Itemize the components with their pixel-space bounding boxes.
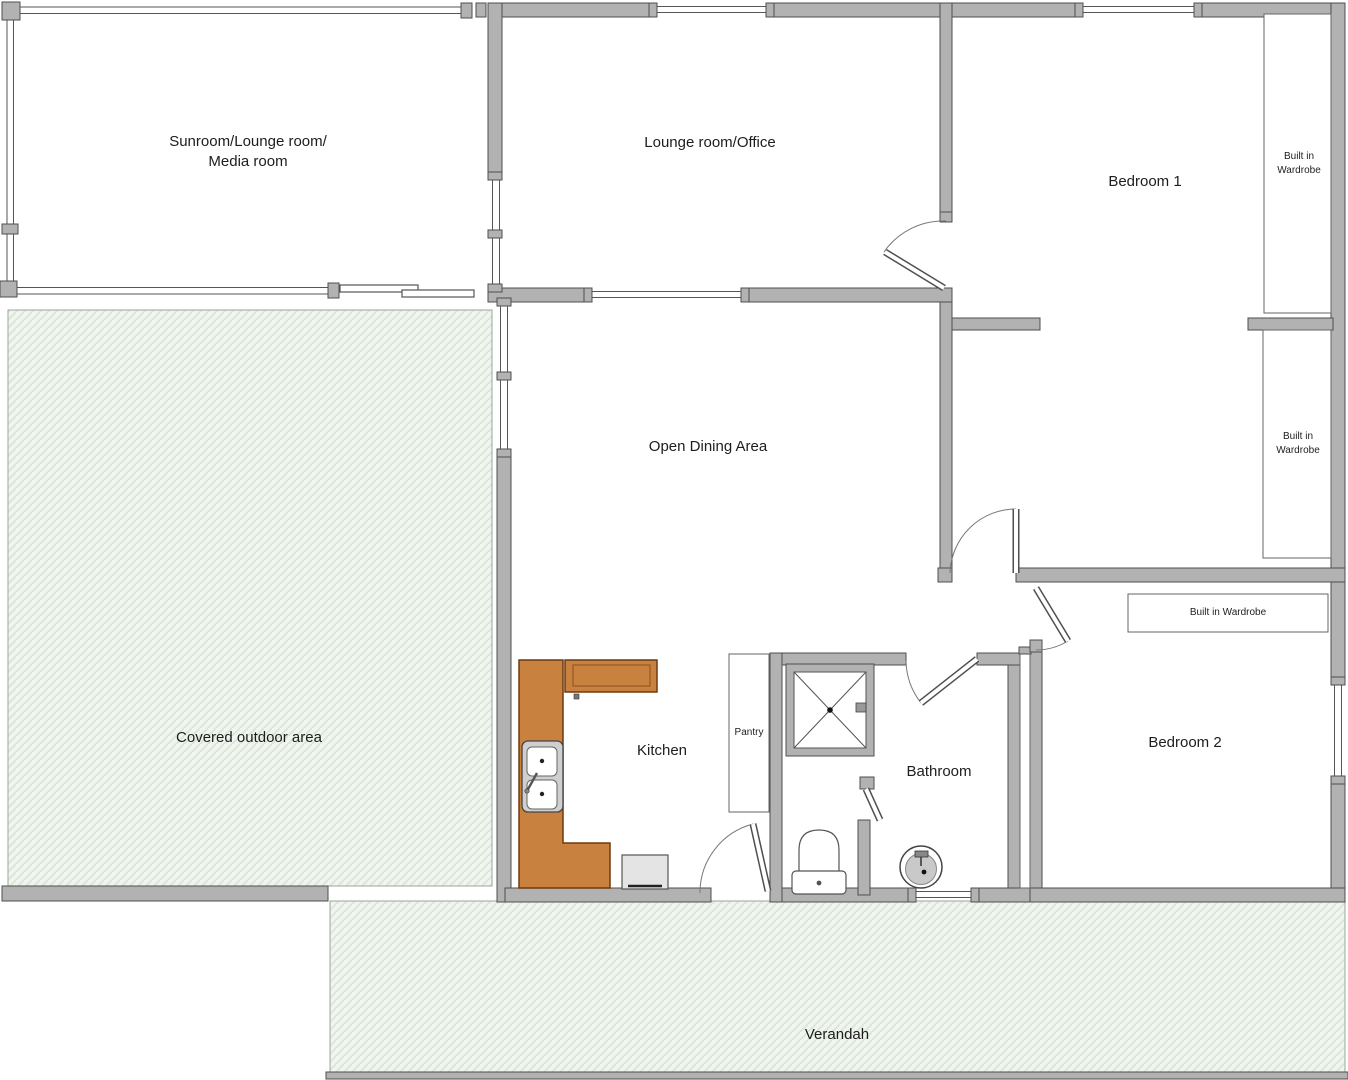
sunroom-label-line1: Sunroom/Lounge room/ (169, 133, 327, 150)
wardrobe3-label: Built in Wardrobe (1190, 606, 1266, 620)
bedroom2-label: Bedroom 2 (1148, 733, 1221, 753)
floor-plan: Sunroom/Lounge room/ Media room Lounge r… (0, 0, 1348, 1080)
sliding-door (340, 285, 474, 297)
lounge-office-label: Lounge room/Office (644, 133, 775, 153)
sunroom-label: Sunroom/Lounge room/ Media room (169, 132, 327, 172)
pantry-label: Pantry (735, 726, 764, 740)
bathroom-label: Bathroom (906, 762, 971, 782)
toilet (792, 830, 846, 894)
door-bathroom-interior (860, 777, 880, 820)
round-basin (900, 846, 942, 888)
wardrobe1-label: Built in Wardrobe (1277, 150, 1321, 178)
covered-outdoor-label: Covered outdoor area (176, 728, 322, 748)
sunroom-label-line2: Media room (208, 153, 287, 170)
door-kitchen-to-verandah (700, 824, 768, 893)
double-sink (522, 741, 563, 812)
shower (786, 664, 874, 756)
kitchen-label: Kitchen (637, 741, 687, 761)
door-dining-to-hall (950, 509, 1016, 573)
door-bathroom (906, 659, 977, 703)
covered-outdoor-area-floor (8, 310, 492, 886)
verandah-floor (326, 901, 1348, 1079)
door-lounge-to-bedroom1 (884, 212, 952, 288)
bedroom1-label: Bedroom 1 (1108, 172, 1181, 192)
overhead-cabinet (565, 660, 657, 699)
wardrobe2-label: Built in Wardrobe (1276, 430, 1320, 458)
stove-appliance (622, 855, 668, 889)
verandah-label: Verandah (805, 1025, 869, 1045)
dining-label: Open Dining Area (649, 437, 767, 457)
door-bedroom2 (1030, 588, 1068, 652)
